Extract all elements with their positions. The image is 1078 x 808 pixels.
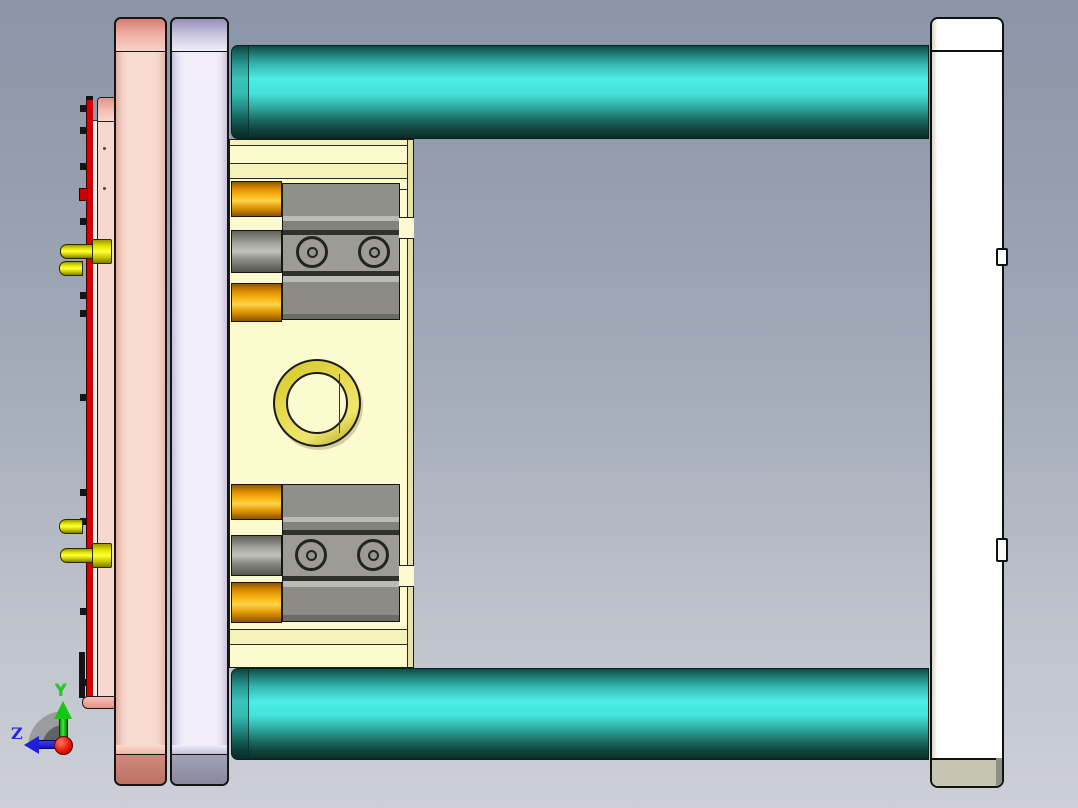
fastener-mark [80,127,86,134]
lamination-line [230,145,409,146]
slide-unit-top[interactable] [282,183,400,320]
core-plate-lavender[interactable] [170,17,229,786]
plate-bottom-section [116,754,165,784]
ejector-rail-dark [79,652,85,698]
screw-dot [103,147,106,150]
screw-dot [103,187,106,190]
screw-center [368,550,379,561]
support-pin-collar[interactable] [92,239,112,264]
origin-sphere-icon [54,736,73,755]
slide-screw-hole [295,539,327,571]
cavity-plate-pink[interactable] [114,17,167,786]
guide-pillar-top[interactable] [231,45,929,139]
fastener-mark [80,489,86,496]
slide-screw-hole [296,236,328,268]
plate-top-shading [172,19,227,52]
plate-top-shading [116,19,165,52]
support-pin-yellow[interactable] [59,519,83,534]
screw-center [369,247,380,258]
lamination-line [230,163,409,164]
support-pin-yellow[interactable] [59,261,83,276]
slide-screw-hole [357,539,389,571]
clamp-plate-white[interactable] [930,17,1004,788]
y-axis-label: Y [55,680,67,699]
cad-viewport[interactable]: Y Z [0,0,1078,808]
guide-pillar-bottom[interactable] [231,668,929,760]
pillar-end-cap [232,46,249,138]
fastener-mark [80,218,86,225]
screw-center [306,550,317,561]
block-step-notch [399,217,414,239]
bushing-orange[interactable] [231,582,282,623]
lamination-line [230,644,409,645]
locating-ring[interactable] [273,359,361,447]
fastener-mark [80,163,86,170]
plate-bottom-section [172,754,227,784]
slide-unit-bottom[interactable] [282,484,400,622]
fastener-mark [80,292,86,299]
bushing-orange[interactable] [231,283,282,322]
slide-rod-gray[interactable] [231,230,282,273]
bushing-orange[interactable] [231,484,282,520]
plate-clip-tab [996,538,1008,562]
z-axis-arrowhead-icon [24,736,39,754]
slide-screw-hole [358,236,390,268]
lamination-line [230,629,409,630]
rear-plate-foot [82,696,117,709]
y-axis-arrowhead-icon [54,701,72,719]
ring-bore-step-line [339,374,340,433]
plate-foot-edge [996,758,1002,786]
plate-bottom-highlight [172,745,227,754]
block-step-notch [399,565,414,587]
support-pin-yellow[interactable] [60,244,94,259]
pillar-end-cap [232,669,249,759]
fastener-mark [80,608,86,615]
fastener-mark [80,310,86,317]
fastener-mark [80,394,86,401]
slide-rod-gray[interactable] [231,535,282,576]
fastener-mark [80,105,86,112]
bushing-orange[interactable] [231,181,282,217]
lamination-tint [230,629,409,644]
z-axis-label: Z [11,724,23,743]
screw-center [307,247,318,258]
lamination-line [230,178,409,179]
plate-parting-line [932,50,1002,52]
lamination-tint [230,163,409,178]
ejector-stop-block [79,188,88,201]
plate-bottom-highlight [116,745,165,754]
plate-foot-beige [932,758,1002,786]
ejector-plate-edge[interactable] [86,96,93,698]
plate-clip-tab [996,248,1008,266]
support-pin-yellow[interactable] [60,548,94,563]
support-pin-collar[interactable] [92,543,112,568]
plate-edge-shading [932,19,938,786]
